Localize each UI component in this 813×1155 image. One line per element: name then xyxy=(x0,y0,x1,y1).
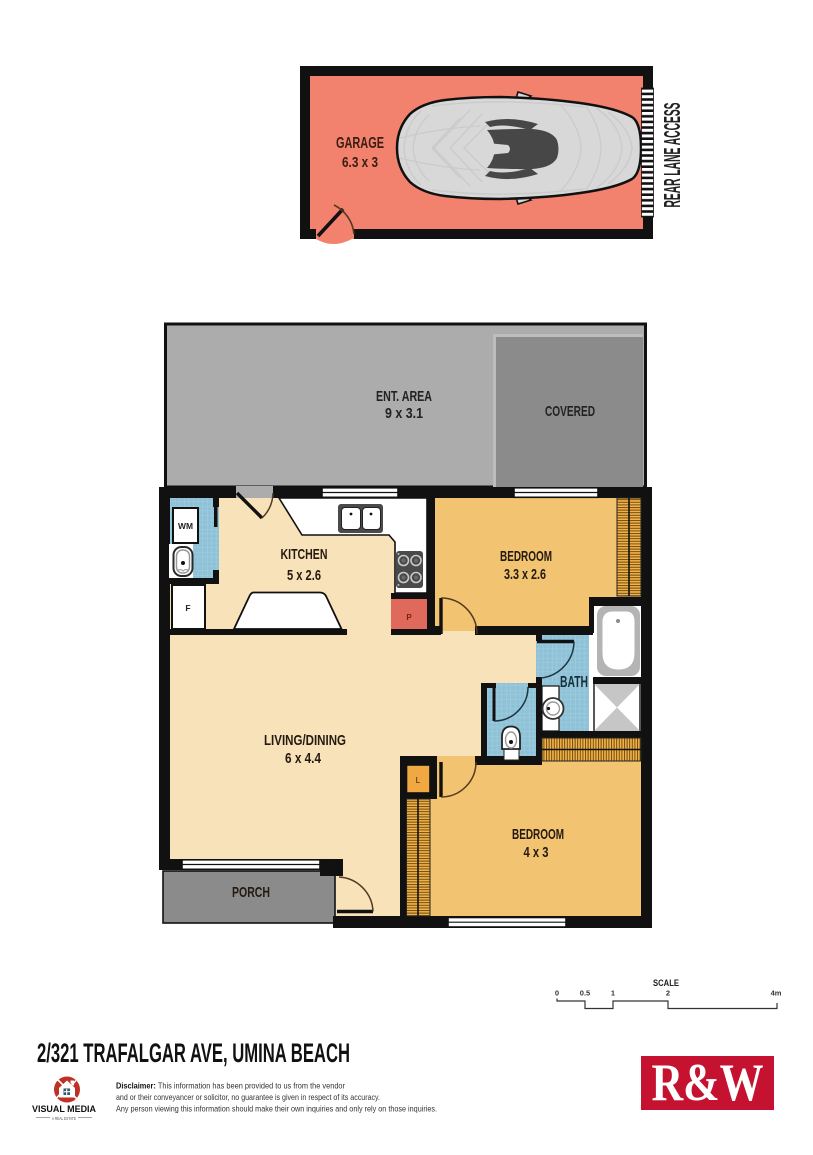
svg-text:5 x 2.6: 5 x 2.6 xyxy=(287,567,321,584)
svg-text:BEDROOM: BEDROOM xyxy=(512,826,564,843)
svg-text:6 x 4.4: 6 x 4.4 xyxy=(285,750,322,767)
svg-text:BEDROOM: BEDROOM xyxy=(500,548,552,565)
svg-text:4m: 4m xyxy=(771,989,782,998)
svg-text:6.3 x 3: 6.3 x 3 xyxy=(342,154,378,171)
svg-text:BATH: BATH xyxy=(560,674,588,691)
svg-text:ENT. AREA: ENT. AREA xyxy=(376,388,432,405)
svg-text:Disclaimer: This information h: Disclaimer: This information has been pr… xyxy=(116,1081,345,1091)
svg-text:KITCHEN: KITCHEN xyxy=(281,546,328,563)
svg-text:1: 1 xyxy=(611,989,615,998)
svg-text:2/321 TRAFALGAR AVE, UMINA BEA: 2/321 TRAFALGAR AVE, UMINA BEACH xyxy=(37,1038,350,1068)
svg-text:Any person viewing this inform: Any person viewing this information shou… xyxy=(116,1104,437,1114)
svg-text:4 x 3: 4 x 3 xyxy=(524,844,549,861)
svg-text:LIVING/DINING: LIVING/DINING xyxy=(264,732,346,749)
svg-text:3.3 x 2.6: 3.3 x 2.6 xyxy=(504,566,546,583)
svg-text:REAR LANE ACCESS: REAR LANE ACCESS xyxy=(659,103,685,208)
svg-text:F: F xyxy=(185,603,190,613)
svg-text:P: P xyxy=(406,613,412,622)
svg-text:SCALE: SCALE xyxy=(653,978,679,989)
svg-text:A REAL ESTATE: A REAL ESTATE xyxy=(52,1116,76,1121)
svg-text:PORCH: PORCH xyxy=(232,884,270,901)
svg-text:L: L xyxy=(416,776,421,785)
svg-text:9 x 3.1: 9 x 3.1 xyxy=(385,405,423,422)
svg-text:R&W: R&W xyxy=(652,1054,764,1112)
svg-text:2: 2 xyxy=(666,989,670,998)
svg-text:0.5: 0.5 xyxy=(580,989,590,998)
svg-text:VISUAL MEDIA: VISUAL MEDIA xyxy=(32,1104,96,1115)
svg-text:and or their conveyancer or so: and or their conveyancer or solicitor, n… xyxy=(116,1092,380,1102)
svg-text:WM: WM xyxy=(178,521,193,531)
svg-text:COVERED: COVERED xyxy=(545,403,595,420)
svg-text:0: 0 xyxy=(555,989,559,998)
svg-text:GARAGE: GARAGE xyxy=(336,135,384,152)
